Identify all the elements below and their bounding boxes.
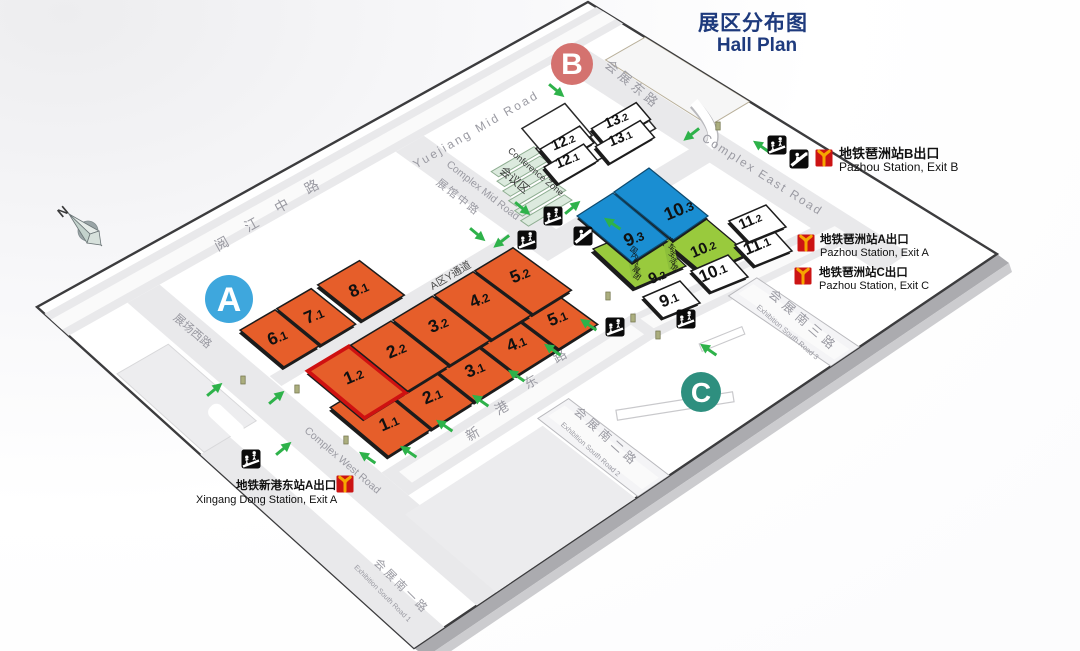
svg-text:Hall Plan: Hall Plan [717,35,797,56]
svg-text:Pazhou Station, Exit A: Pazhou Station, Exit A [820,247,930,259]
svg-text:地铁琶洲站A出口: 地铁琶洲站A出口 [820,232,909,246]
svg-text:Xingang Dong Station, Exit A: Xingang Dong Station, Exit A [196,494,338,506]
svg-text:B: B [561,48,583,81]
svg-text:N: N [54,203,71,221]
svg-text:地铁琶洲站C出口: 地铁琶洲站C出口 [819,265,908,279]
svg-text:展区分布图: 展区分布图 [698,11,808,35]
svg-text:Pazhou Station, Exit C: Pazhou Station, Exit C [819,280,929,292]
svg-text:Pazhou Station, Exit B: Pazhou Station, Exit B [839,160,958,174]
svg-text:A: A [217,281,242,319]
svg-text:地铁琶洲站B出口: 地铁琶洲站B出口 [839,146,939,161]
svg-text:地铁新港东站A出口: 地铁新港东站A出口 [236,478,336,492]
svg-text:C: C [691,377,711,408]
